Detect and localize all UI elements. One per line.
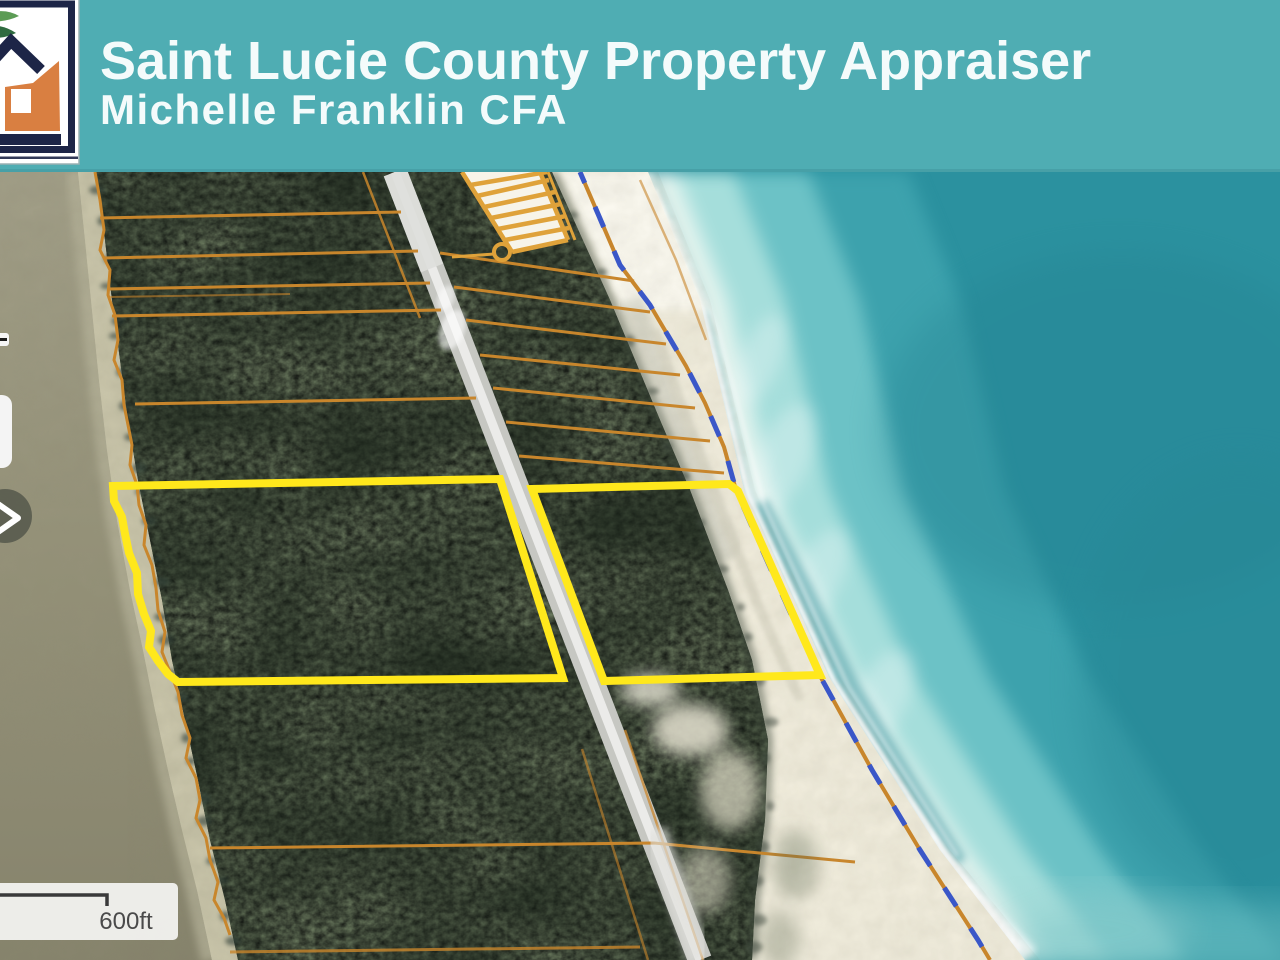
svg-text:600ft: 600ft	[99, 908, 153, 935]
svg-text:Saint Lucie County Property Ap: Saint Lucie County Property Appraiser	[100, 31, 1091, 91]
svg-text:Michelle Franklin CFA: Michelle Franklin CFA	[100, 86, 568, 133]
